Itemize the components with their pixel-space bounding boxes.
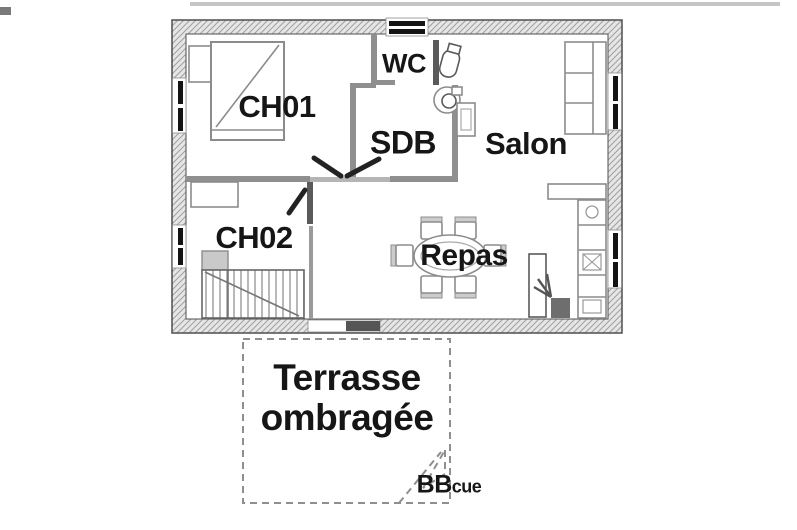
window-right-kitchen: [608, 230, 622, 288]
sofa: [565, 42, 606, 134]
room-label-ch01: CH01: [238, 89, 315, 125]
floorplan-canvas: CH01 WC SDB Salon CH02 Repas Terrasse om…: [0, 0, 797, 530]
room-label-salon-text: Salon: [485, 126, 567, 161]
sliding-door-bottom: [308, 320, 380, 332]
terrace-label-line2: ombragée: [261, 398, 434, 438]
room-label-salon: Salon: [485, 126, 567, 162]
kitchen-counter: [548, 184, 606, 199]
bbq-label-big: BB: [417, 471, 452, 499]
room-label-repas-text: Repas: [420, 239, 508, 272]
room-label-repas: Repas: [420, 239, 508, 273]
floorplan-drawing: [0, 0, 797, 530]
bbq-label: BBcue: [417, 471, 482, 500]
window-right-salon: [608, 73, 622, 130]
shower-unit: [457, 103, 475, 136]
room-label-ch01-text: CH01: [238, 89, 315, 124]
bbq-label-small: cue: [452, 477, 482, 497]
room-label-ch02-text: CH02: [215, 220, 292, 255]
window-left-ch01: [173, 78, 187, 133]
wardrobe-ch02: [191, 182, 238, 207]
room-label-sdb: SDB: [370, 125, 436, 162]
room-label-wc-text: WC: [382, 49, 426, 79]
scan-artifact-line: [190, 2, 780, 6]
terrace-label-line1: Terrasse: [261, 358, 434, 398]
room-label-sdb-text: SDB: [370, 125, 436, 161]
nightstand-ch01: [189, 46, 212, 82]
room-label-ch02: CH02: [215, 220, 292, 256]
kitchen-appliance-column: [578, 200, 606, 318]
window-left-ch02: [173, 225, 187, 268]
bed-ch02: [202, 270, 304, 318]
terrace-label: Terrasse ombragée: [261, 358, 434, 438]
room-label-wc: WC: [382, 49, 426, 80]
scan-artifact-mark: [0, 7, 11, 15]
vent-top-wc: [386, 18, 428, 36]
